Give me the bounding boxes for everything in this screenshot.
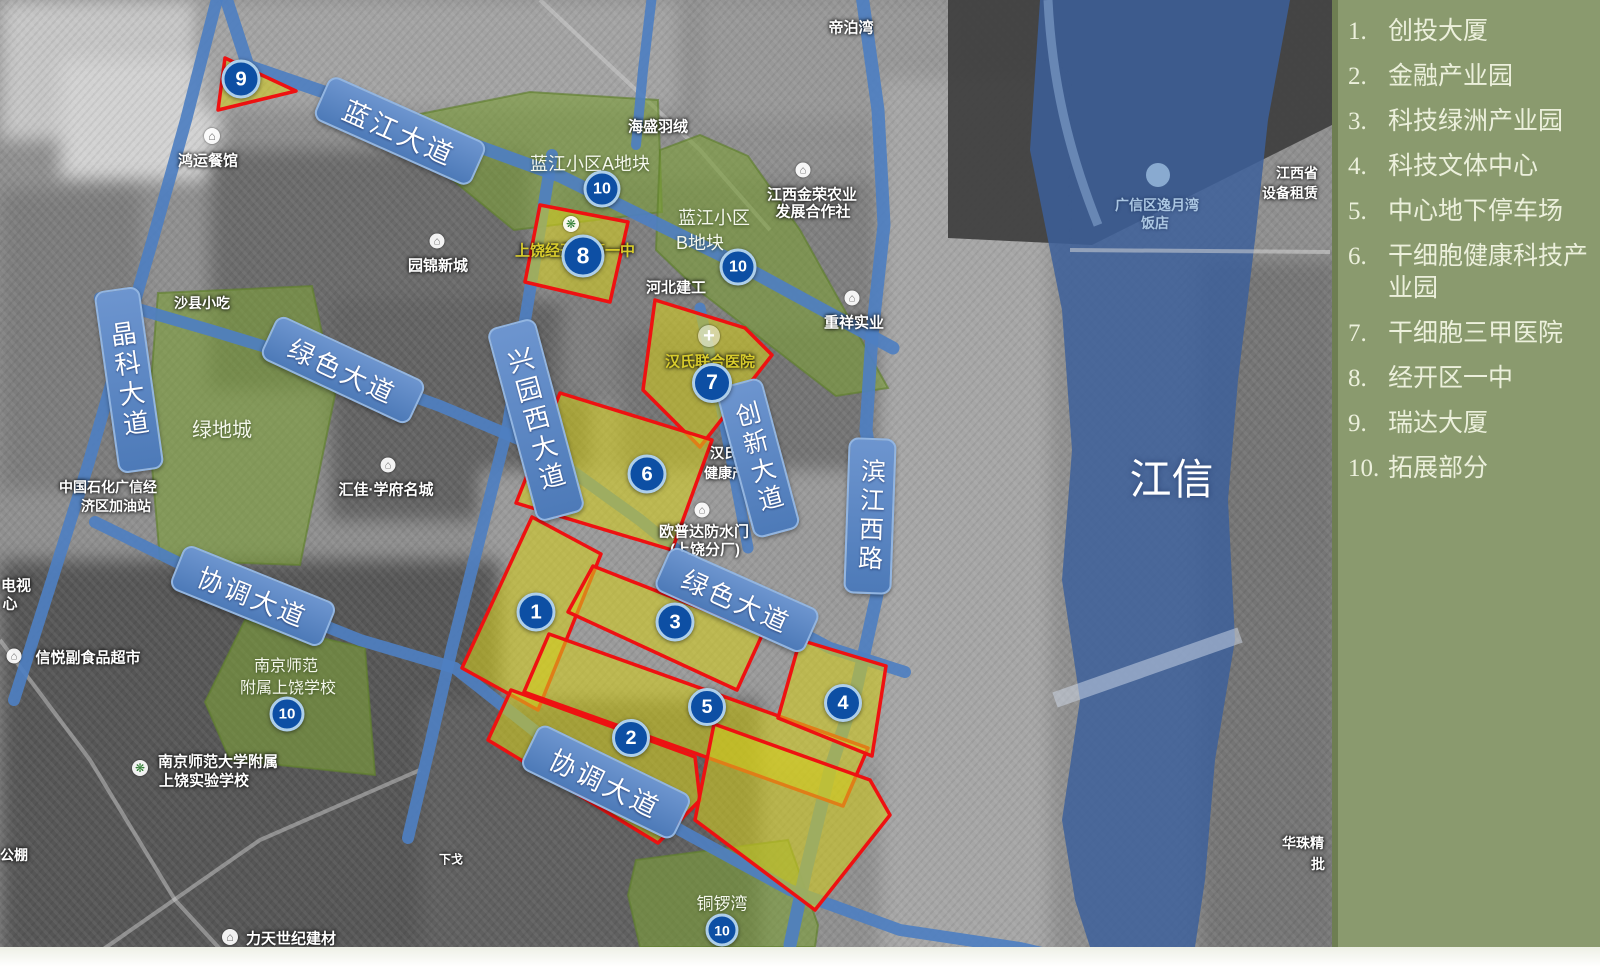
map-label: 沙县小吃 — [174, 293, 230, 313]
building-icon: ⌂ — [695, 503, 710, 518]
minor-road — [0, 640, 230, 960]
legend-item-number: 4. — [1348, 151, 1388, 183]
legend-item-number: 3. — [1348, 106, 1388, 138]
map-label: 批 — [1311, 854, 1325, 874]
legend-item: 1.创投大厦 — [1348, 16, 1598, 48]
legend-item-label: 瑞达大厦 — [1388, 408, 1596, 440]
map-label: 上饶实验学校 — [159, 770, 249, 791]
building-icon: ⌂ — [430, 234, 445, 249]
legend-item-number: 2. — [1348, 61, 1388, 93]
building-icon: ⌂ — [381, 458, 396, 473]
zone-name-label: 铜锣湾 — [697, 890, 748, 915]
legend-item-label: 拓展部分 — [1388, 453, 1596, 485]
site-marker-1[interactable]: 1 — [517, 593, 556, 632]
zone-name-label: B地块 — [676, 229, 724, 255]
site-marker-10[interactable]: 10 — [584, 171, 621, 208]
map-label: 园锦新城 — [408, 255, 468, 276]
legend-item: 6.干细胞健康科技产业园 — [1348, 241, 1598, 305]
legend-item-number: 1. — [1348, 16, 1388, 48]
legend-item: 9.瑞达大厦 — [1348, 408, 1598, 440]
hotel-map-pin — [1146, 163, 1170, 187]
legend-item: 3.科技绿洲产业园 — [1348, 106, 1598, 138]
page-bottom-margin — [0, 947, 1600, 967]
building-icon: ⌂ — [796, 163, 811, 178]
legend-item-number: 6. — [1348, 241, 1388, 305]
map-label: 济区加油站 — [81, 496, 151, 516]
legend-item-label: 创投大厦 — [1388, 16, 1596, 48]
site-marker-10[interactable]: 10 — [706, 914, 739, 947]
legend-item-label: 科技文体中心 — [1388, 151, 1596, 183]
legend-item-label: 经开区一中 — [1388, 363, 1596, 395]
site-marker-2[interactable]: 2 — [612, 719, 650, 757]
map-label: 海盛羽绒 — [628, 116, 688, 137]
map-label: 发展合作社 — [775, 201, 850, 222]
planning-map-page: { "colors":{ "legend_bg":"#8a9a6e","road… — [0, 0, 1600, 967]
legend-item-label: 中心地下停车场 — [1388, 196, 1596, 228]
legend-item-number: 9. — [1348, 408, 1388, 440]
map-label: 信悦副食品超市 — [35, 647, 140, 668]
legend-item: 4.科技文体中心 — [1348, 151, 1598, 183]
legend-panel: 1.创投大厦2.金融产业园3.科技绿洲产业园4.科技文体中心5.中心地下停车场6… — [1332, 0, 1600, 947]
map-label: 广信区逸月湾 — [1115, 195, 1199, 215]
legend-item-label: 干细胞三甲医院 — [1388, 318, 1596, 350]
site-marker-3[interactable]: 3 — [656, 603, 695, 642]
road-label-pill: 滨江西路 — [843, 437, 896, 595]
map-label: 中国石化广信经 — [59, 477, 157, 497]
legend-item-number: 5. — [1348, 196, 1388, 228]
map-label: 江西省 — [1276, 163, 1318, 183]
river-name-label: 信江 — [1126, 427, 1210, 529]
restaurant-icon: ⌂ — [204, 128, 220, 144]
legend-item-label: 金融产业园 — [1388, 61, 1596, 93]
legend-item-number: 8. — [1348, 363, 1388, 395]
map-label: 重祥实业 — [824, 312, 884, 333]
legend-item-number: 10. — [1348, 453, 1388, 485]
map-label: 设备租赁 — [1262, 183, 1318, 203]
building-icon: ⌂ — [845, 291, 860, 306]
legend-item: 2.金融产业园 — [1348, 61, 1598, 93]
map-label: 华珠精 — [1282, 833, 1324, 853]
river-dam — [1070, 250, 1330, 252]
map-label: 南京师范大学附属 — [158, 751, 278, 772]
map-label: 心 — [2, 593, 17, 614]
school-icon: ❋ — [132, 760, 148, 776]
site-marker-4[interactable]: 4 — [824, 684, 862, 722]
site-marker-10[interactable]: 10 — [270, 697, 305, 732]
legend-list: 1.创投大厦2.金融产业园3.科技绿洲产业园4.科技文体中心5.中心地下停车场6… — [1338, 0, 1600, 485]
building-icon: ⌂ — [222, 929, 238, 945]
map-label: 公棚 — [0, 845, 28, 865]
legend-item: 7.干细胞三甲医院 — [1348, 318, 1598, 350]
site-marker-10[interactable]: 10 — [720, 249, 757, 286]
legend-item-label: 科技绿洲产业园 — [1388, 106, 1596, 138]
site-marker-9[interactable]: 9 — [222, 60, 261, 99]
legend-item-number: 7. — [1348, 318, 1388, 350]
legend-item-label: 干细胞健康科技产业园 — [1388, 241, 1596, 305]
zone-name-label: 蓝江小区A地块 — [530, 150, 650, 176]
site-marker-6[interactable]: 6 — [628, 455, 667, 494]
legend-item: 8.经开区一中 — [1348, 363, 1598, 395]
school-icon: ❋ — [563, 216, 579, 232]
map-label: 河北建工 — [646, 277, 706, 298]
legend-item: 5.中心地下停车场 — [1348, 196, 1598, 228]
zone-name-label: 南京师范 — [254, 652, 318, 676]
zone-name-label: 附属上饶学校 — [240, 674, 336, 698]
legend-item: 10.拓展部分 — [1348, 453, 1598, 485]
map-label: 汇佳·学府名城 — [339, 479, 434, 500]
map-label: 鸿运餐馆 — [178, 150, 238, 171]
hospital-cross-icon: + — [698, 325, 720, 347]
site-marker-5[interactable]: 5 — [688, 688, 726, 726]
map-label: 帝泊湾 — [828, 17, 873, 38]
map-label: 下戈 — [439, 851, 463, 868]
zone-name-label: 绿地城 — [192, 414, 252, 443]
map-label: 力天世纪建材 — [246, 928, 336, 949]
supermarket-icon: ⌂ — [7, 649, 22, 664]
map-label: 饭店 — [1141, 213, 1169, 233]
zone-name-label: 蓝江小区 — [678, 204, 750, 230]
site-marker-7[interactable]: 7 — [692, 363, 732, 403]
site-marker-8[interactable]: 8 — [562, 235, 605, 278]
